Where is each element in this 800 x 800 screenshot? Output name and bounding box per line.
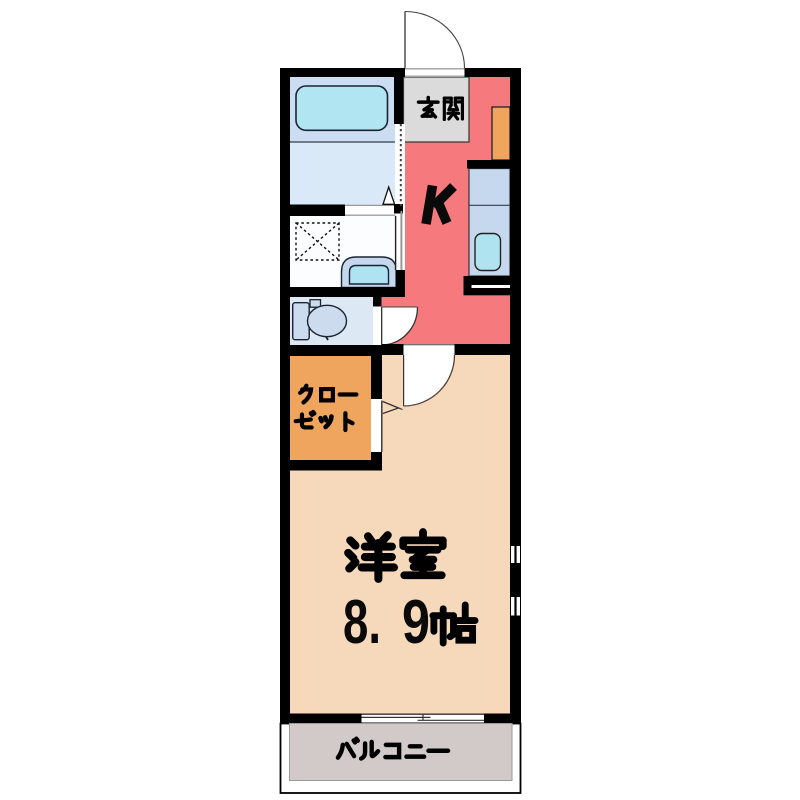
- svg-text:8.: 8.: [343, 588, 381, 657]
- svg-text:9: 9: [402, 588, 430, 657]
